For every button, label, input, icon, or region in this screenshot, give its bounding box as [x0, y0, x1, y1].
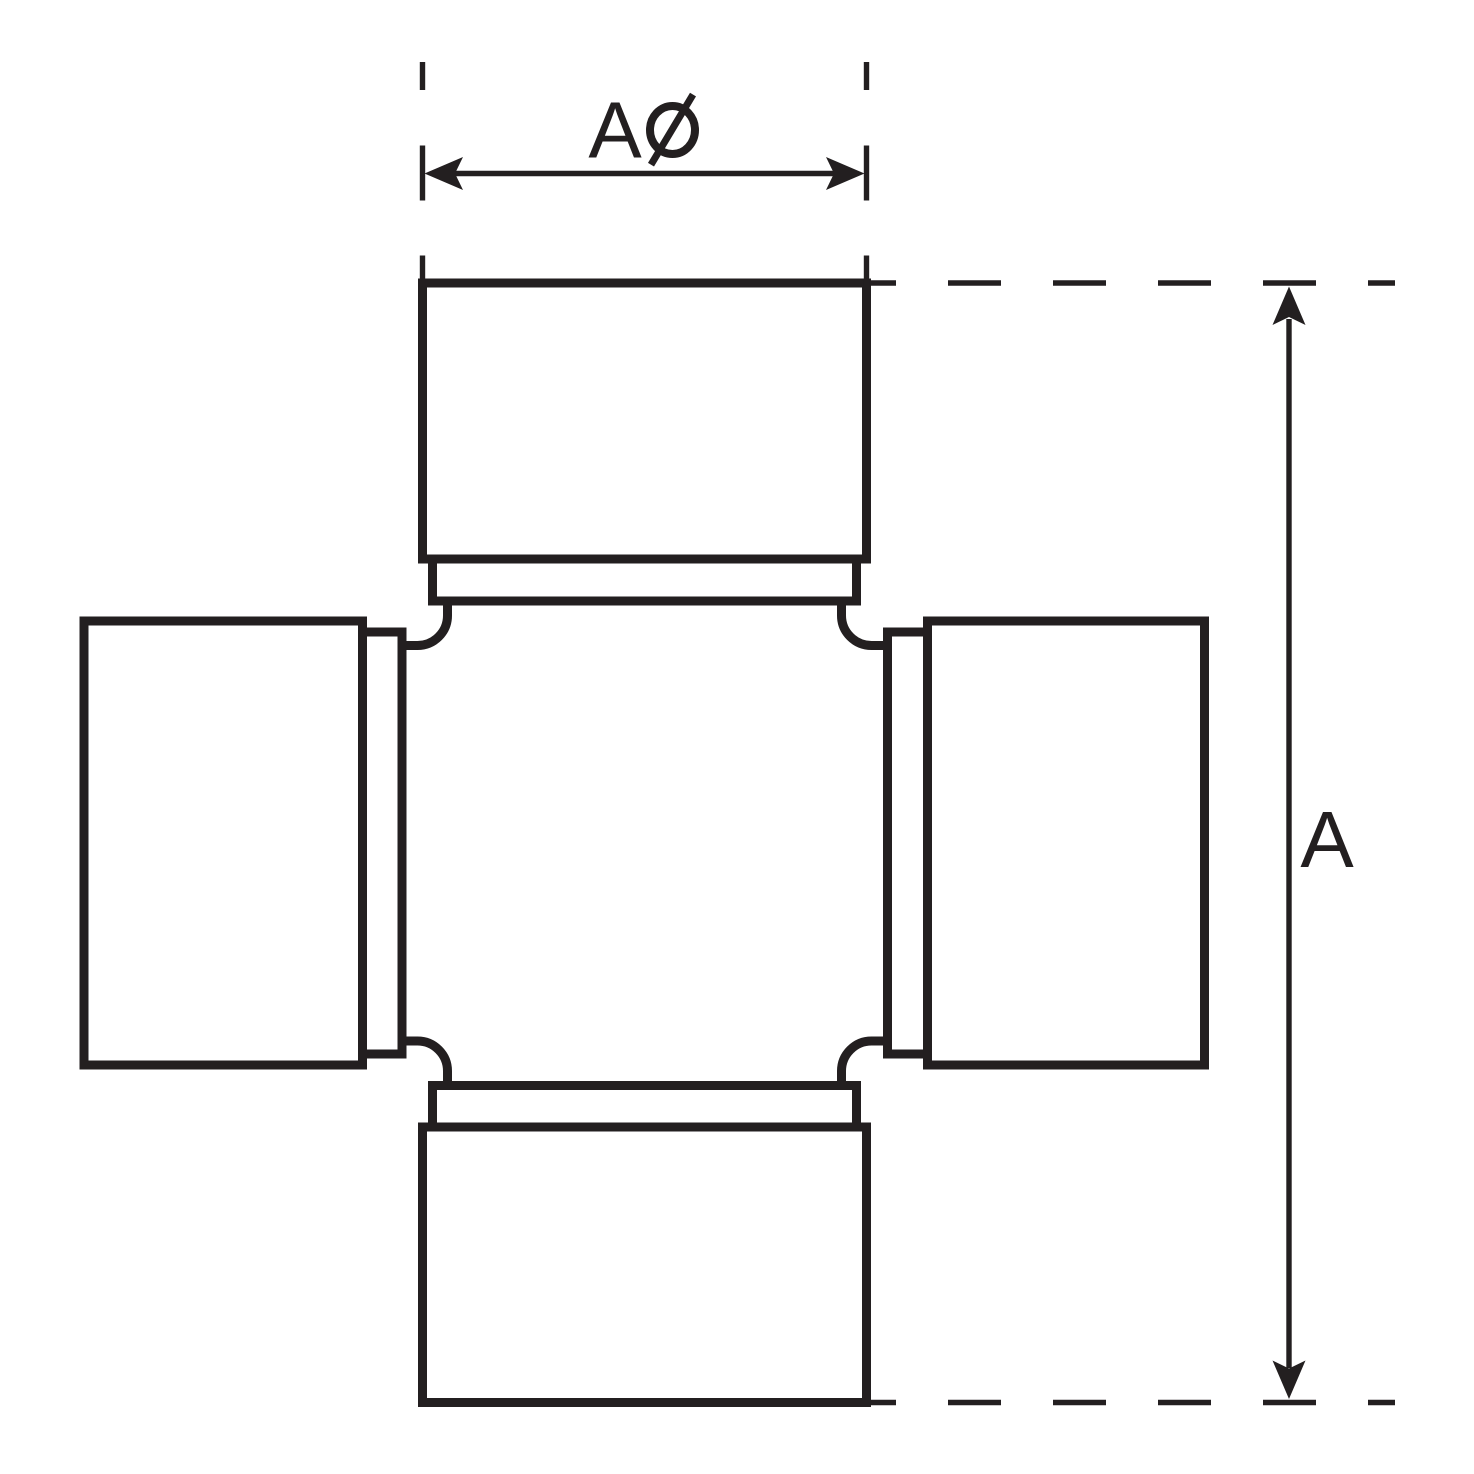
svg-text:A: A — [1300, 795, 1354, 884]
svg-text:A: A — [588, 86, 642, 175]
